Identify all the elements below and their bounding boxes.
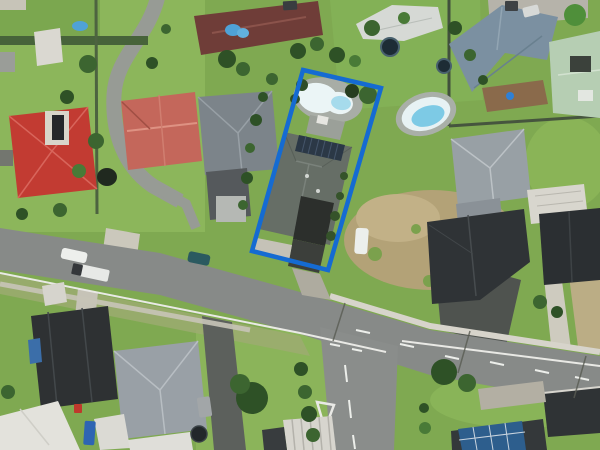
tree-berm-right: [431, 359, 457, 385]
tree: [306, 428, 320, 442]
car-blue: [83, 421, 96, 446]
deck-umbrella: [506, 92, 514, 100]
hedge-row-topleft: [0, 36, 148, 45]
tree: [419, 403, 429, 413]
tree: [72, 164, 86, 178]
grass-tuft: [411, 224, 421, 234]
tree: [533, 295, 547, 309]
parcel-shrub: [330, 211, 340, 221]
roof-dark-by-pergola: [262, 427, 287, 450]
shrub: [266, 73, 278, 85]
grass-tuft: [368, 247, 382, 261]
tree: [16, 208, 28, 220]
car-red-small: [74, 404, 82, 413]
carport-white-small: [42, 282, 67, 306]
car-gray-bottomleft: [197, 396, 213, 418]
spa-bottomleft: [191, 426, 207, 442]
pond-dark: [97, 168, 117, 186]
tree: [1, 385, 15, 399]
tree: [349, 55, 361, 67]
tree: [310, 37, 324, 51]
car-white-by-parcel: [354, 228, 369, 255]
tree: [218, 50, 236, 68]
tree: [478, 75, 488, 85]
tree: [329, 47, 345, 63]
shrub: [250, 114, 262, 126]
roof-vent: [305, 174, 309, 178]
shed-left-edge-1: [0, 52, 15, 72]
tree: [53, 203, 67, 217]
bush-dark-by-pool: [345, 84, 359, 98]
tree: [301, 406, 317, 422]
tree: [458, 374, 476, 392]
tree: [60, 90, 74, 104]
tree: [464, 49, 476, 61]
tree: [551, 306, 563, 318]
shed-topleft: [34, 28, 63, 66]
house-bottomright-2-roof: [543, 387, 600, 437]
tree: [236, 62, 250, 76]
parcel-shrub: [336, 192, 344, 200]
tree: [79, 55, 97, 73]
house-green-roof: [549, 31, 600, 118]
house-bottomleft-dark-roof: [31, 306, 118, 409]
tree: [161, 24, 171, 34]
tree: [448, 21, 462, 35]
parcel-shrub: [326, 231, 336, 241]
tree: [146, 57, 158, 69]
shrub: [245, 143, 255, 153]
building-white-2: [94, 414, 130, 450]
tree: [88, 133, 104, 149]
house-green-unit: [578, 90, 593, 101]
shrub: [258, 92, 268, 102]
tree: [290, 43, 306, 59]
tree-round-bright: [564, 4, 586, 26]
roof-vent: [316, 189, 320, 193]
shrub: [241, 172, 253, 184]
tree: [398, 12, 410, 24]
pool-topleft-small: [72, 21, 88, 31]
blue-tarp: [28, 338, 42, 364]
pale-drive-topleft: [0, 0, 26, 10]
tree: [364, 20, 380, 36]
spa-round-1: [381, 38, 399, 56]
house-red-solar-panel: [52, 115, 64, 140]
aerial-viewport[interactable]: [0, 0, 600, 450]
tree: [230, 374, 250, 394]
parcel-shrub: [340, 172, 348, 180]
satellite-image[interactable]: [0, 0, 600, 450]
shrub: [238, 200, 248, 210]
van-dark-topright: [505, 1, 518, 11]
tree: [298, 385, 312, 399]
shed-left-edge-2: [0, 150, 13, 166]
car-dark-topcenter: [283, 1, 298, 11]
pool-neighbor-kidney-b: [237, 28, 249, 38]
house-gray-right-roof: [451, 129, 531, 207]
dirt-yard-light: [356, 194, 440, 242]
house-green-skylight: [570, 56, 591, 72]
tree: [419, 422, 431, 434]
tree: [294, 362, 308, 376]
spa-round-2: [437, 59, 451, 73]
